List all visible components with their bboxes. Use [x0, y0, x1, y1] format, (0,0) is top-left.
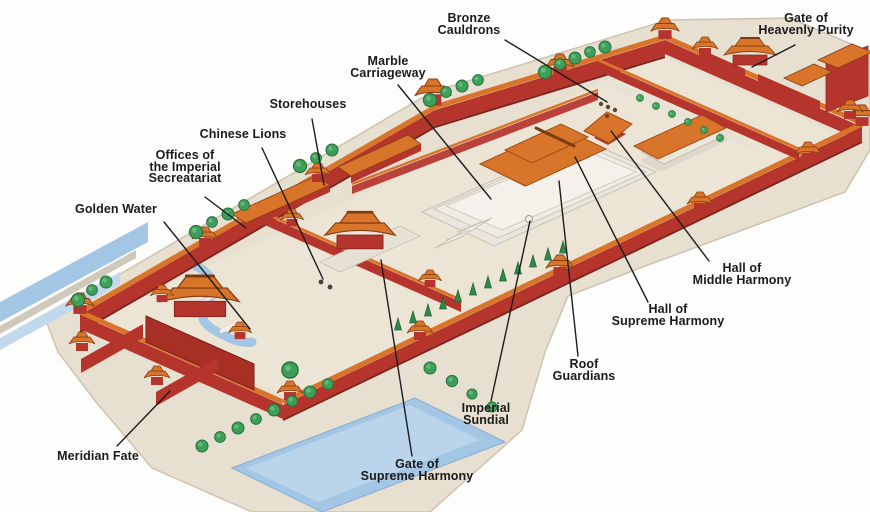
label-storehouses: Storehouses	[270, 99, 347, 111]
label-golden-water: Golden Water	[75, 204, 157, 216]
diagram-canvas: Bronze Cauldrons Gate of Heavenly Purity…	[0, 0, 870, 512]
imperial-sundial-figure	[526, 216, 533, 223]
label-gate-of-supreme-harmony: Gate of Supreme Harmony	[361, 459, 474, 482]
label-roof-guardians: Roof Guardians	[553, 359, 616, 382]
label-marble-carriageway: Marble Carriageway	[350, 56, 425, 79]
label-hall-of-supreme-harmony: Hall of Supreme Harmony	[612, 304, 725, 327]
label-bronze-cauldrons: Bronze Cauldrons	[438, 13, 501, 36]
label-meridian-fate: Meridian Fate	[57, 451, 139, 463]
label-chinese-lions: Chinese Lions	[200, 129, 287, 141]
label-offices-of-the-imperial-secretariat: Offices of the Imperial Secreatariat	[149, 150, 222, 185]
label-hall-of-middle-harmony: Hall of Middle Harmony	[693, 263, 792, 286]
label-imperial-sundial: Imperial Sundial	[462, 403, 511, 426]
label-gate-of-heavenly-purity: Gate of Heavenly Purity	[758, 13, 853, 36]
forbidden-city-illustration	[0, 0, 870, 512]
